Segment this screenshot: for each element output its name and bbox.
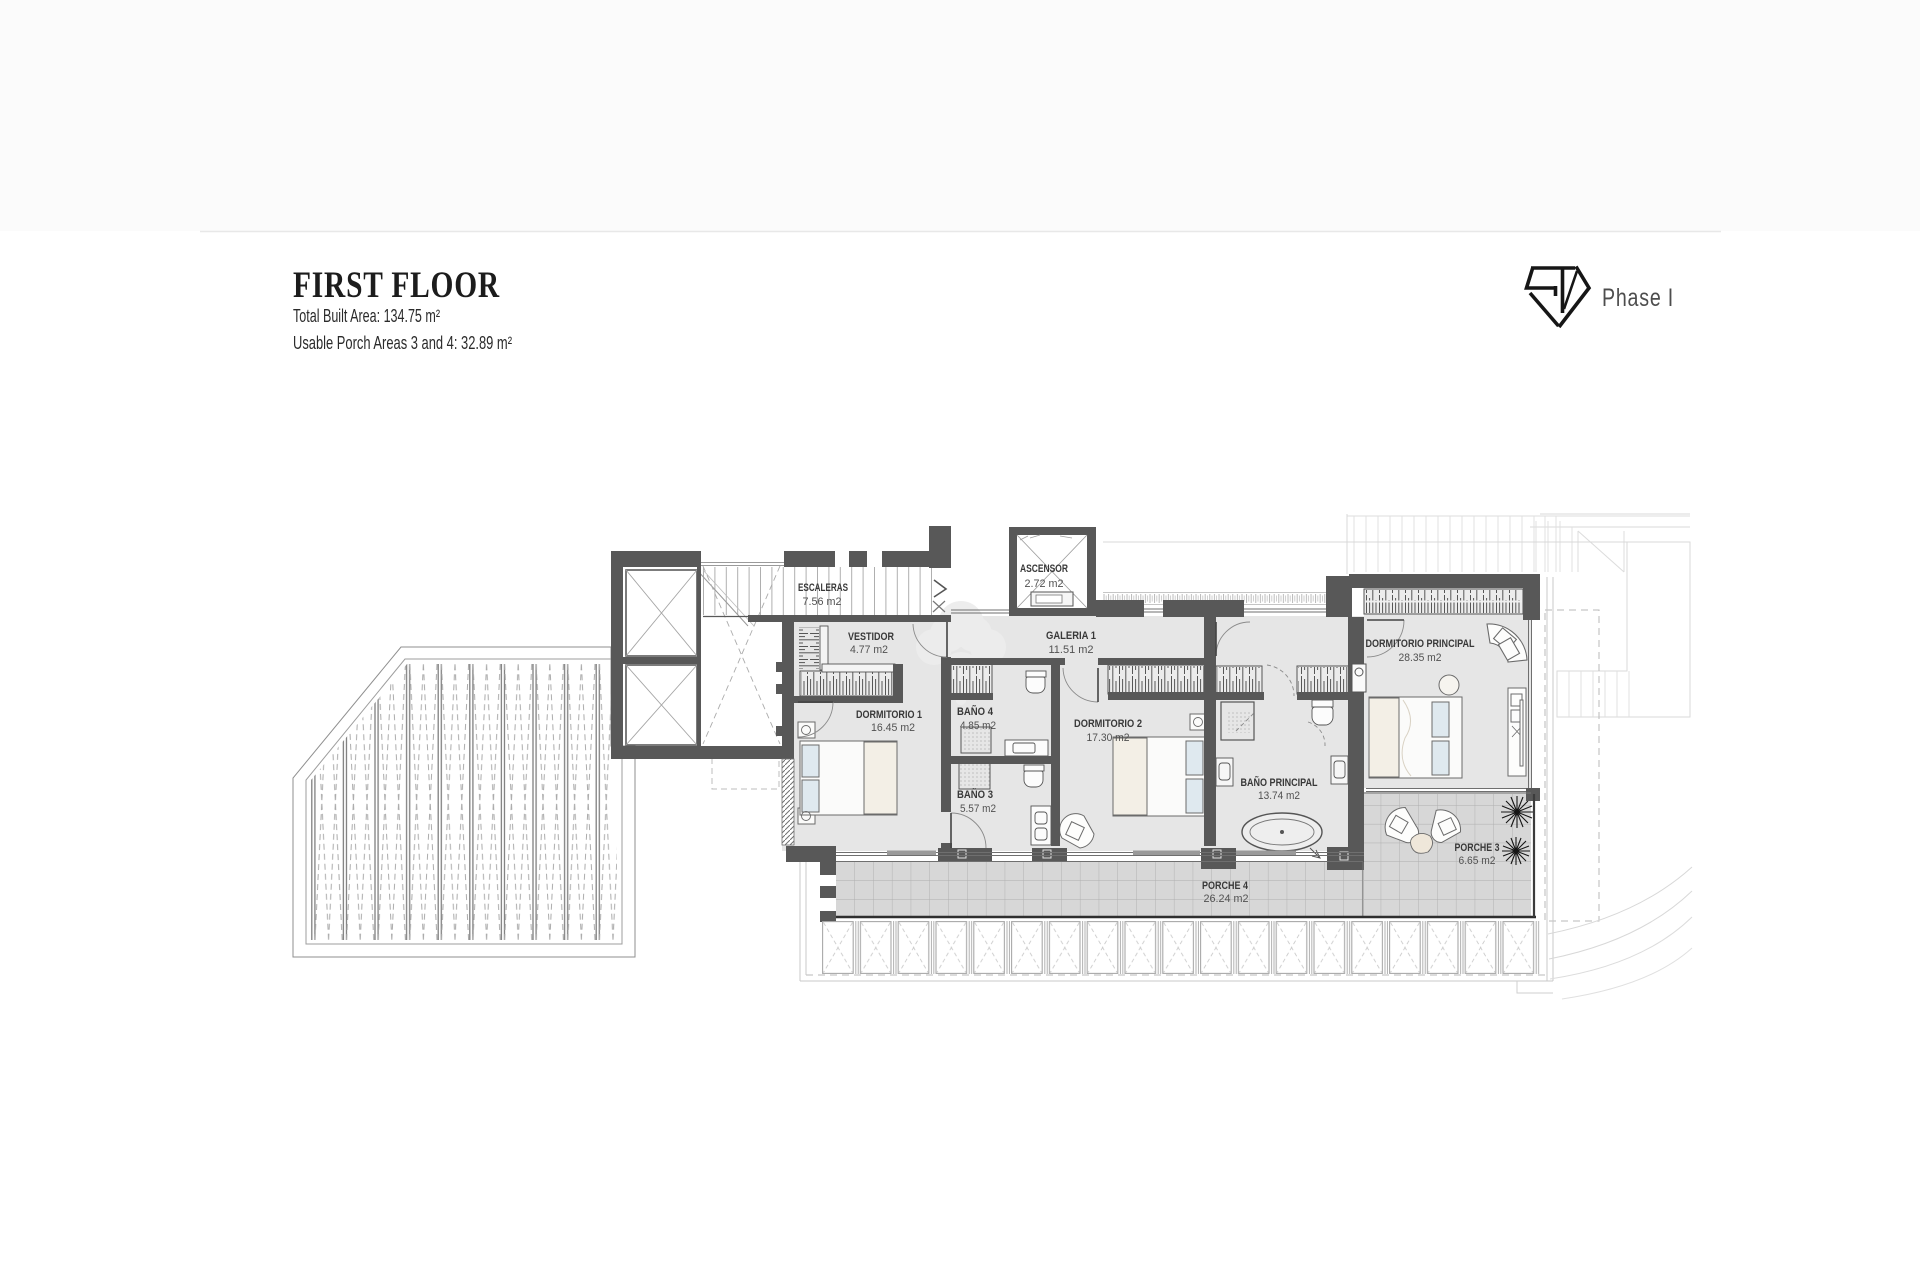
svg-text:Total Built Area: 134.75 m²: Total Built Area: 134.75 m² (293, 306, 440, 326)
svg-text:DORMITORIO PRINCIPAL: DORMITORIO PRINCIPAL (1366, 638, 1475, 650)
svg-text:6.65 m2: 6.65 m2 (1459, 855, 1496, 867)
svg-text:4.85 m2: 4.85 m2 (960, 720, 996, 732)
svg-text:26.24 m2: 26.24 m2 (1204, 893, 1249, 905)
svg-text:BAÑO 3: BAÑO 3 (957, 788, 993, 801)
svg-text:ASCENSOR: ASCENSOR (1020, 563, 1068, 575)
svg-text:BAÑO PRINCIPAL: BAÑO PRINCIPAL (1241, 776, 1318, 789)
svg-text:28.35 m2: 28.35 m2 (1399, 652, 1442, 664)
svg-text:7.56 m2: 7.56 m2 (803, 596, 842, 608)
svg-text:PORCHE 4: PORCHE 4 (1202, 880, 1249, 892)
svg-text:5.57 m2: 5.57 m2 (960, 803, 996, 815)
svg-text:PORCHE 3: PORCHE 3 (1455, 842, 1500, 854)
svg-text:GALERIA 1: GALERIA 1 (1046, 630, 1096, 642)
svg-text:Phase I: Phase I (1602, 284, 1674, 312)
svg-text:Usable Porch Areas 3 and 4: 32: Usable Porch Areas 3 and 4: 32.89 m² (293, 333, 512, 353)
svg-text:2.72 m2: 2.72 m2 (1025, 578, 1064, 590)
svg-text:17.30 m2: 17.30 m2 (1087, 732, 1130, 744)
svg-text:4.77 m2: 4.77 m2 (850, 644, 888, 656)
svg-text:13.74 m2: 13.74 m2 (1258, 790, 1300, 802)
svg-text:DORMITORIO 1: DORMITORIO 1 (856, 709, 922, 721)
svg-text:VESTIDOR: VESTIDOR (848, 631, 894, 643)
svg-text:16.45 m2: 16.45 m2 (871, 722, 915, 734)
svg-text:ESCALERAS: ESCALERAS (798, 582, 848, 594)
svg-text:BAÑO 4: BAÑO 4 (957, 705, 994, 718)
svg-text:11.51 m2: 11.51 m2 (1049, 644, 1094, 656)
svg-text:FIRST FLOOR: FIRST FLOOR (293, 265, 500, 306)
svg-text:DORMITORIO 2: DORMITORIO 2 (1074, 718, 1142, 730)
